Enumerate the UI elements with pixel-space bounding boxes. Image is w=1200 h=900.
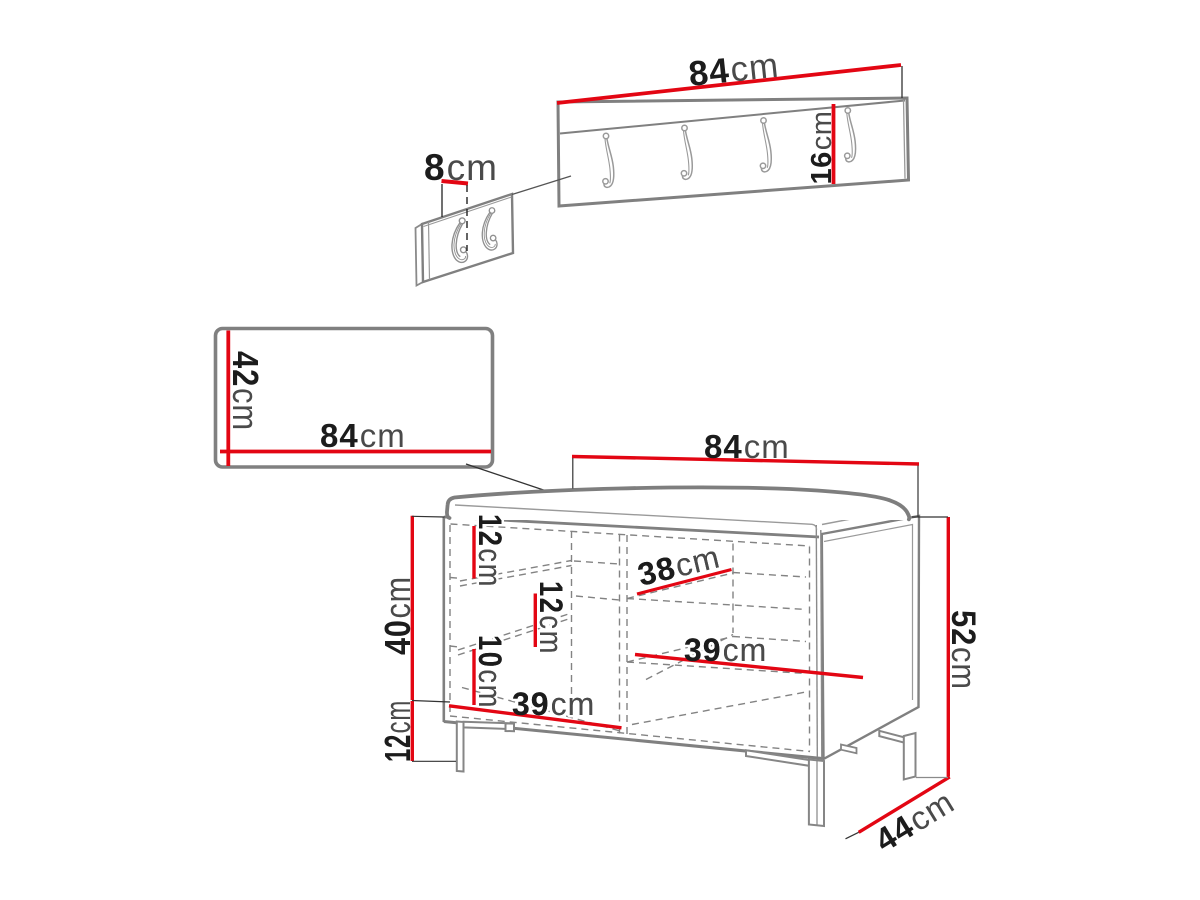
svg-text:12cm: 12cm bbox=[533, 581, 569, 655]
svg-text:39cm: 39cm bbox=[512, 686, 595, 722]
svg-text:12cm: 12cm bbox=[377, 700, 418, 762]
svg-text:42cm: 42cm bbox=[225, 351, 266, 431]
svg-text:12cm: 12cm bbox=[472, 514, 508, 588]
svg-text:40cm: 40cm bbox=[377, 576, 418, 655]
svg-text:10cm: 10cm bbox=[472, 635, 508, 709]
svg-text:39cm: 39cm bbox=[684, 632, 767, 668]
svg-text:84cm: 84cm bbox=[320, 417, 406, 454]
svg-text:8cm: 8cm bbox=[424, 147, 498, 188]
svg-text:52cm: 52cm bbox=[944, 610, 982, 690]
svg-text:84cm: 84cm bbox=[704, 428, 790, 465]
